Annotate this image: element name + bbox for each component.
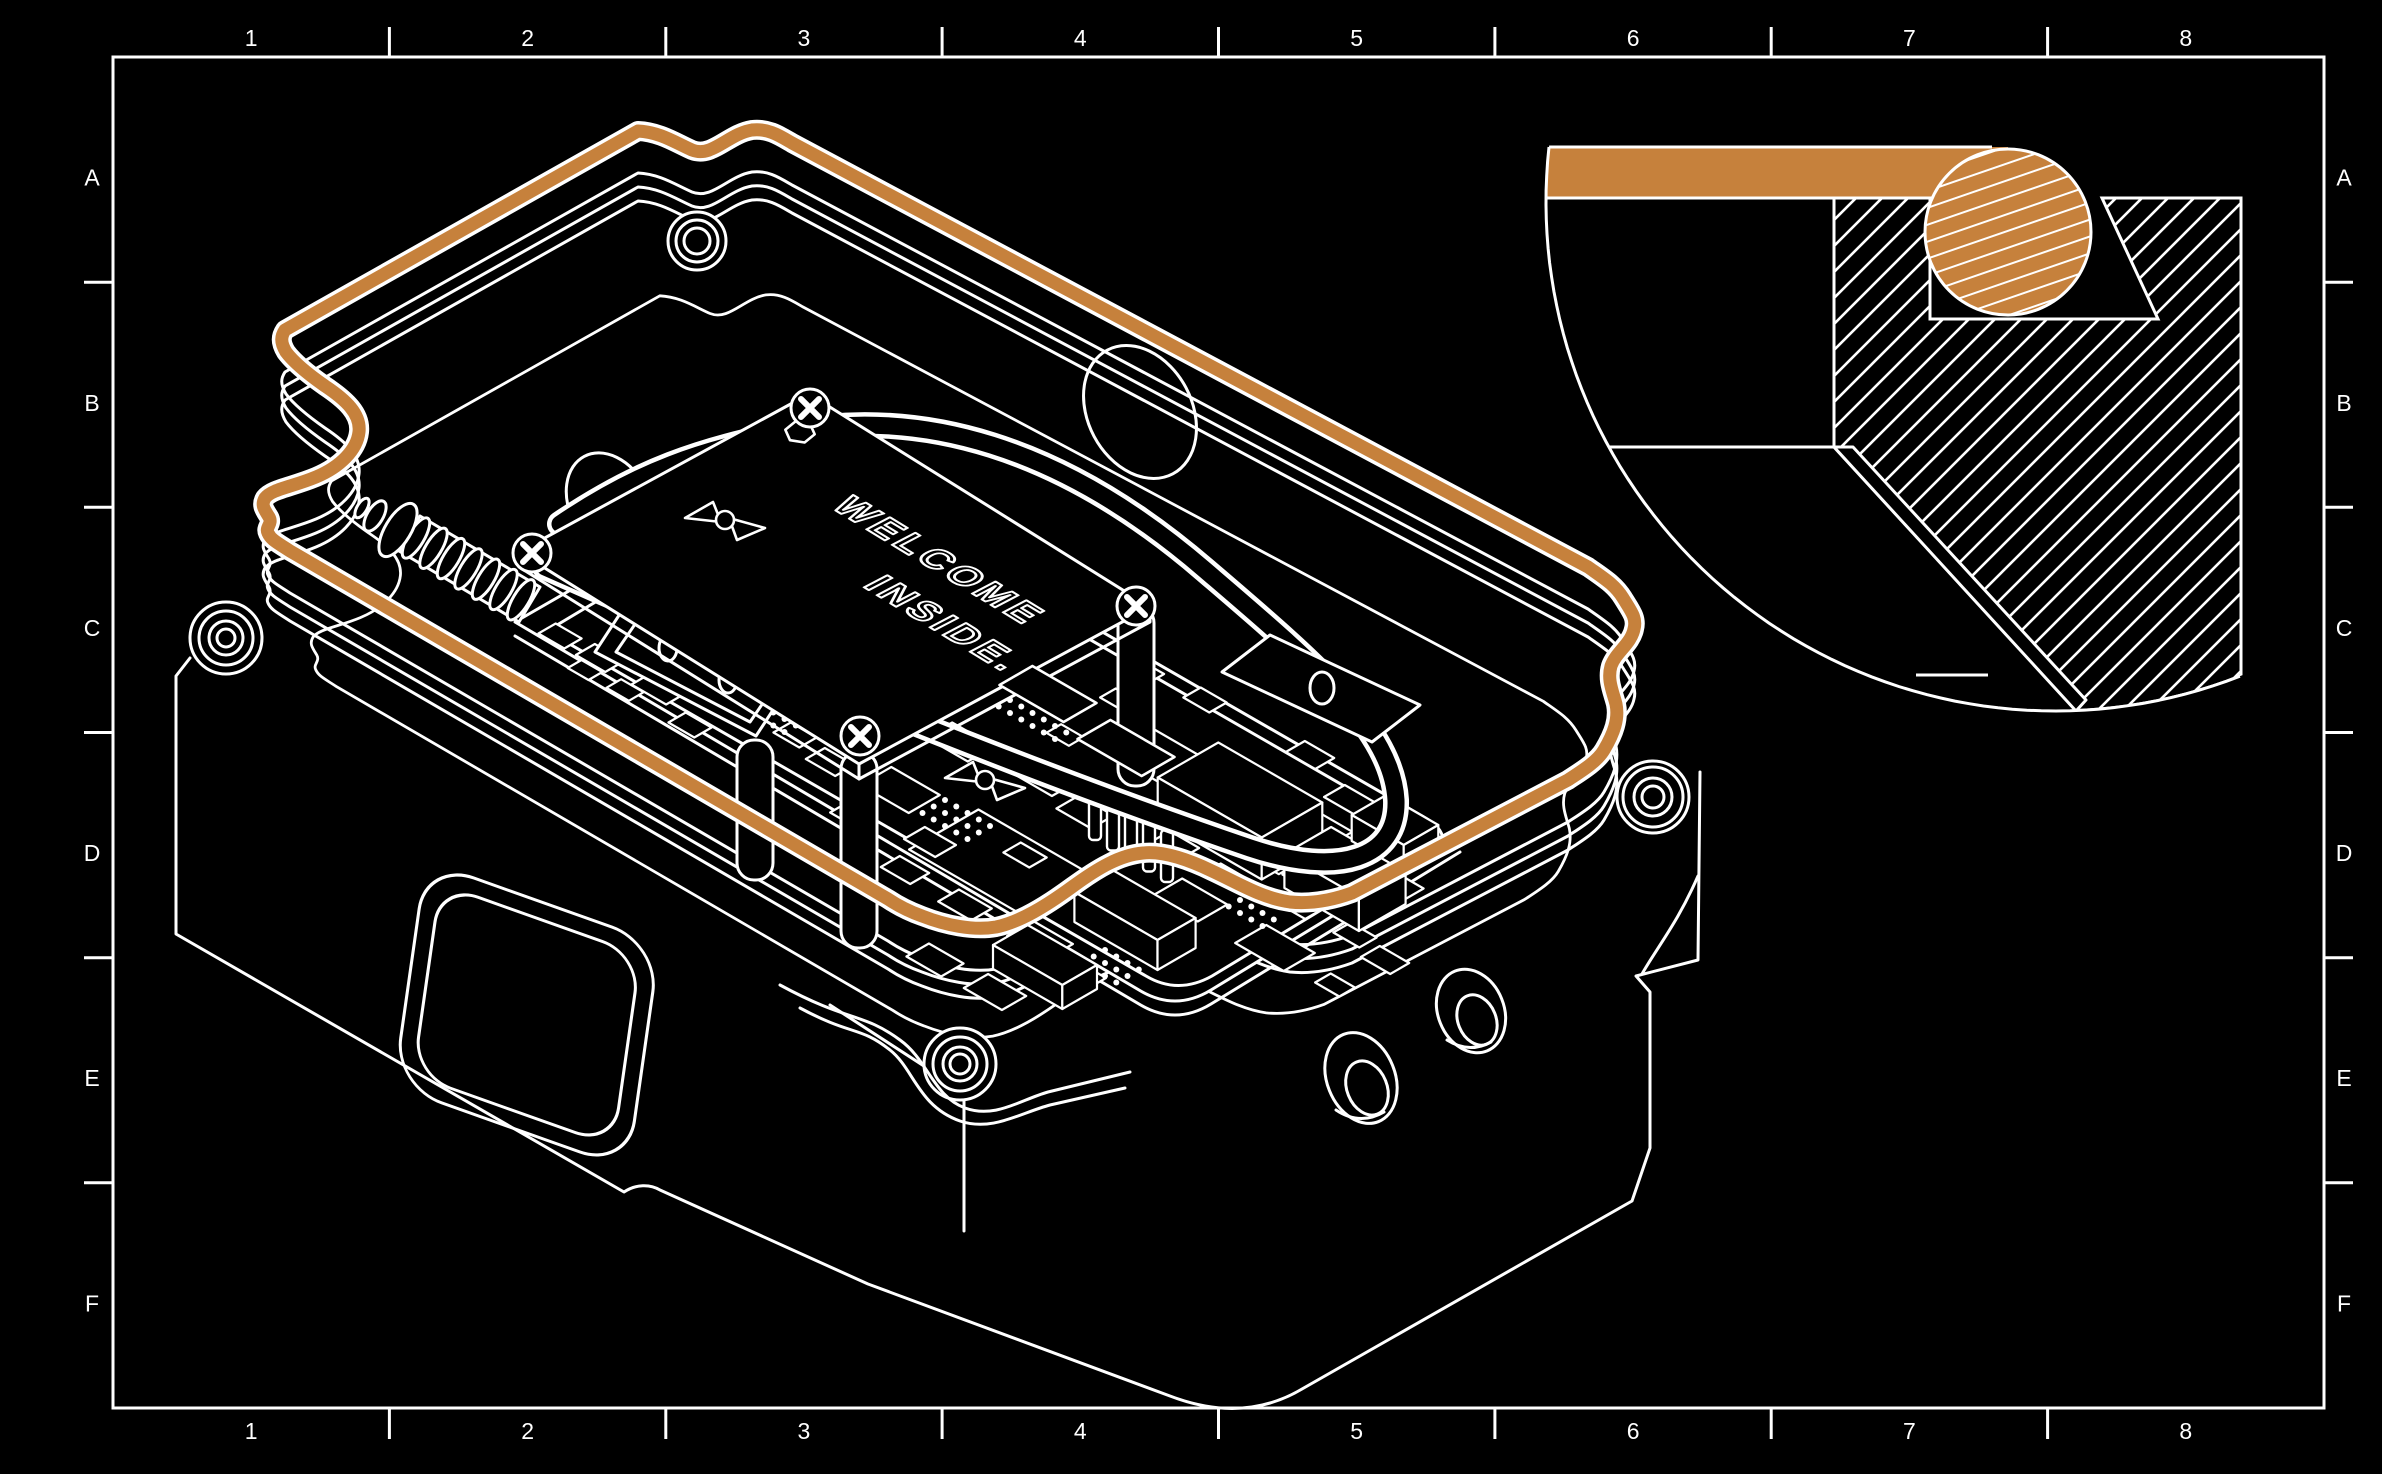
svg-text:5: 5 <box>1350 1418 1363 1444</box>
svg-text:B: B <box>84 390 99 416</box>
svg-text:5: 5 <box>1350 25 1363 51</box>
svg-text:3: 3 <box>798 25 811 51</box>
svg-text:D: D <box>2336 840 2353 866</box>
svg-text:1: 1 <box>245 25 258 51</box>
svg-text:2: 2 <box>521 1418 534 1444</box>
svg-text:7: 7 <box>1903 1418 1916 1444</box>
svg-text:A: A <box>2336 165 2352 191</box>
svg-text:F: F <box>2337 1290 2351 1316</box>
svg-text:2: 2 <box>521 25 534 51</box>
svg-text:4: 4 <box>1074 1418 1087 1444</box>
svg-text:8: 8 <box>2179 1418 2192 1444</box>
svg-text:A: A <box>84 165 100 191</box>
svg-text:6: 6 <box>1627 1418 1640 1444</box>
svg-text:3: 3 <box>798 1418 811 1444</box>
svg-text:1: 1 <box>245 1418 258 1444</box>
svg-text:C: C <box>84 615 101 641</box>
svg-text:7: 7 <box>1903 25 1916 51</box>
svg-text:C: C <box>2336 615 2353 641</box>
svg-text:F: F <box>85 1290 99 1316</box>
svg-text:E: E <box>2336 1065 2351 1091</box>
svg-text:4: 4 <box>1074 25 1087 51</box>
svg-text:D: D <box>84 840 101 866</box>
svg-text:B: B <box>2336 390 2351 416</box>
svg-text:8: 8 <box>2179 25 2192 51</box>
svg-text:E: E <box>84 1065 99 1091</box>
svg-text:6: 6 <box>1627 25 1640 51</box>
